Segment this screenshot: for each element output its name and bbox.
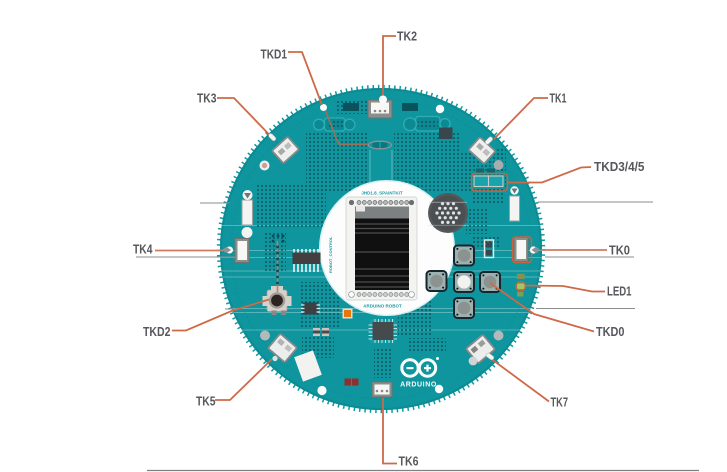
svg-text:TK3: TK3 [197, 92, 217, 106]
svg-text:TK7: TK7 [551, 396, 569, 410]
svg-text:ARDUINO: ARDUINO [400, 382, 437, 389]
svg-text:TK6: TK6 [399, 455, 419, 469]
svg-text:LED1: LED1 [607, 285, 632, 299]
svg-text:TK2: TK2 [397, 30, 417, 44]
svg-text:TK4: TK4 [133, 243, 153, 257]
svg-text:ROBOT_CONTROL: ROBOT_CONTROL [328, 236, 333, 273]
svg-text:TKD3/4/5: TKD3/4/5 [594, 160, 645, 174]
svg-text:TK5: TK5 [196, 395, 216, 409]
svg-text:TK1: TK1 [550, 92, 567, 106]
svg-text:TKD2: TKD2 [143, 325, 171, 339]
svg-text:ARDUINO ROBOT: ARDUINO ROBOT [363, 304, 402, 309]
svg-text:TKD0: TKD0 [596, 325, 625, 339]
svg-text:JHD1.8_SPAINTKIT: JHD1.8_SPAINTKIT [361, 191, 402, 196]
svg-text:TK0: TK0 [609, 244, 630, 258]
svg-text:TKD1: TKD1 [261, 48, 288, 62]
